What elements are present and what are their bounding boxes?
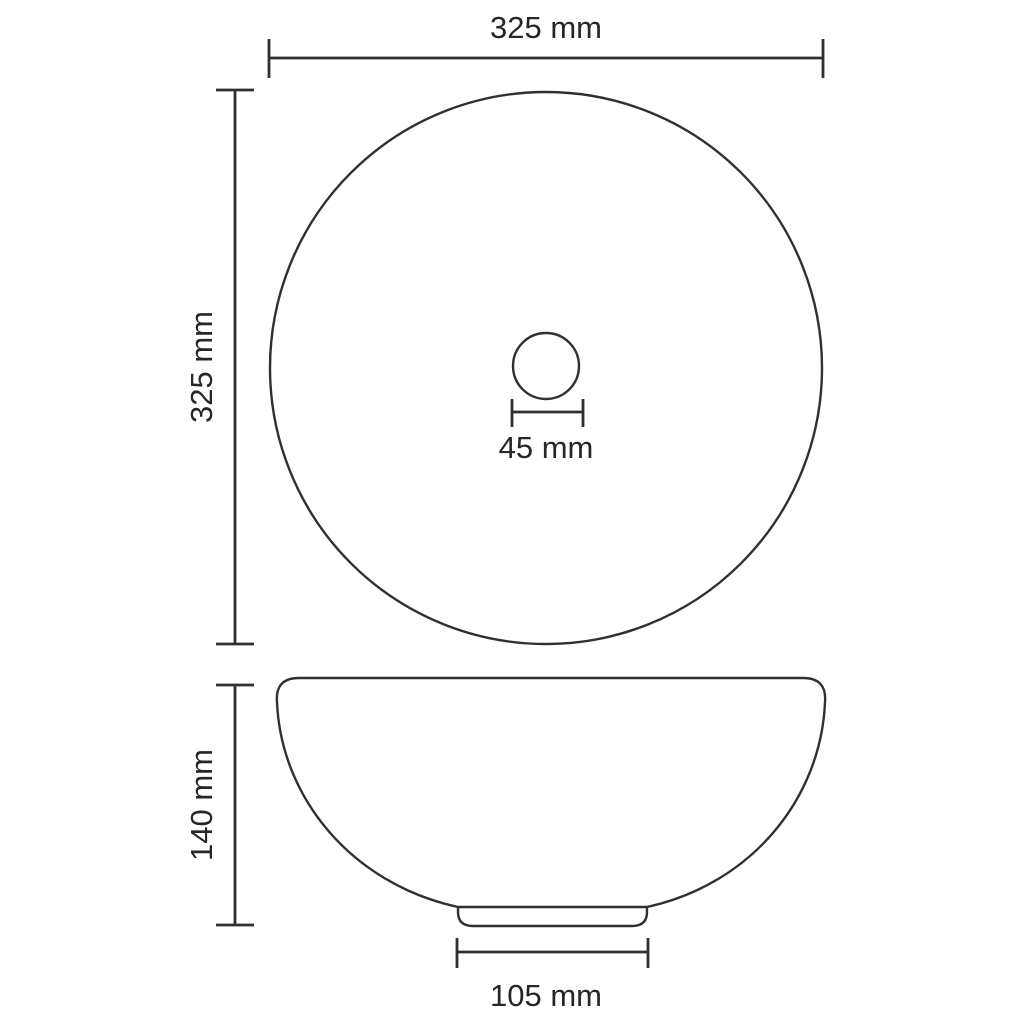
dim-overall-height: 140 mm: [184, 685, 254, 925]
dim-base-diameter: 105 mm: [457, 938, 648, 1013]
washbasin-technical-drawing: 45 mm 325 mm 325 mm 140 mm 105 mm: [0, 0, 1024, 1024]
base-diameter-label: 105 mm: [490, 978, 602, 1013]
overall-height-label: 140 mm: [184, 749, 219, 861]
dim-overall-depth: 325 mm: [184, 90, 254, 644]
base-foot-outline: [458, 907, 647, 926]
overall-depth-label: 325 mm: [184, 311, 219, 423]
drain-hole-circle: [513, 333, 579, 399]
dim-overall-width: 325 mm: [269, 10, 823, 78]
basin-rim-circle: [270, 92, 822, 644]
dim-drain-diameter: 45 mm: [499, 399, 594, 465]
overall-width-label: 325 mm: [490, 10, 602, 45]
side-view: 140 mm 105 mm: [184, 678, 825, 1013]
drain-diameter-label: 45 mm: [499, 430, 594, 465]
top-view: 45 mm: [270, 92, 822, 644]
bowl-profile-outline: [277, 678, 825, 907]
